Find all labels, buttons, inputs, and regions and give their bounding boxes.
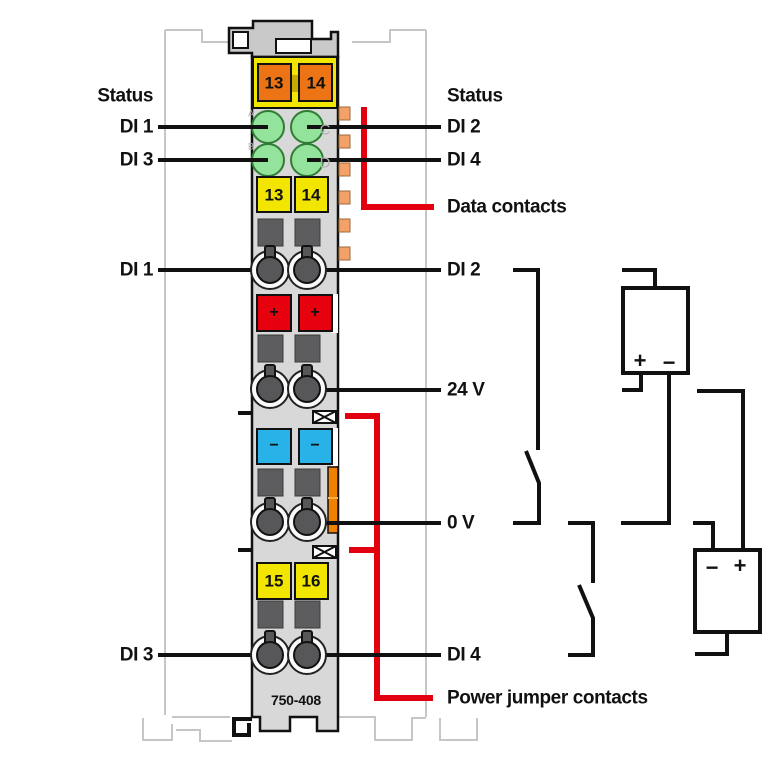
din-rail-latch <box>229 21 338 57</box>
jumper-terminal-14: 14 <box>307 75 326 92</box>
terminal-15: 15 <box>265 573 284 590</box>
label-di3-clamp: DI 3 <box>0 646 153 665</box>
led-letter-c: C <box>320 123 331 138</box>
data-contact-pins <box>339 107 350 260</box>
plus-plate-sign: + <box>269 305 278 321</box>
supply2-plus-sign: + <box>734 555 747 577</box>
supply2-minus-sign: − <box>706 557 719 579</box>
label-di4-clamp: DI 4 <box>447 646 480 665</box>
led-letter-d: D <box>320 156 331 171</box>
wiring-diagram: Status DI 1 DI 3 DI 1 DI 3 Status DI 2 D… <box>0 0 768 766</box>
label-di1-clamp: DI 1 <box>0 261 153 280</box>
label-di2-clamp: DI 2 <box>447 261 480 280</box>
external-circuit <box>513 270 760 655</box>
minus-plate-sign: − <box>269 438 278 454</box>
label-di1-led: DI 1 <box>0 118 153 137</box>
left-jumper-ticks <box>238 413 252 550</box>
label-24v: 24 V <box>447 381 485 400</box>
part-number: 750-408 <box>271 692 321 708</box>
label-status-right: Status <box>447 87 503 106</box>
jumper-terminal-13: 13 <box>265 75 284 92</box>
supply1-plus-sign: + <box>634 350 647 372</box>
label-di4-led: DI 4 <box>447 151 480 170</box>
label-di3-led: DI 3 <box>0 151 153 170</box>
label-status-left: Status <box>0 87 153 106</box>
switch-di2 <box>513 270 539 523</box>
label-power-jumper-contacts: Power jumper contacts <box>447 689 648 708</box>
label-di2-led: DI 2 <box>447 118 480 137</box>
terminal-13: 13 <box>265 187 284 204</box>
data-contacts-highlight <box>364 107 434 207</box>
switch-di4 <box>568 523 593 655</box>
terminal-16: 16 <box>302 573 321 590</box>
din-rail-claw <box>234 719 252 735</box>
label-data-contacts: Data contacts <box>447 198 566 217</box>
label-0v: 0 V <box>447 514 474 533</box>
plus-plate-sign: + <box>310 305 319 321</box>
supply1-minus-sign: − <box>663 352 676 374</box>
terminal-14: 14 <box>302 187 321 204</box>
led-letter-a: A <box>248 110 254 119</box>
led-letter-b: B <box>248 143 254 152</box>
minus-plate-sign: − <box>310 438 319 454</box>
